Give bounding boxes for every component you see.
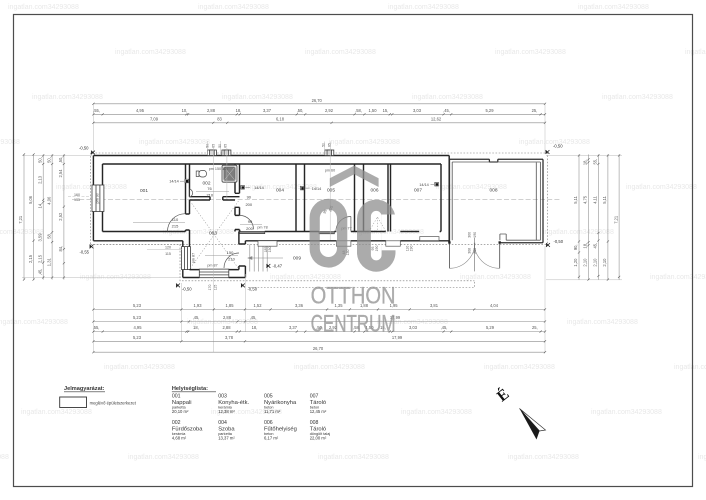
- svg-text:ingatlan.com34293088: ingatlan.com34293088: [139, 139, 210, 146]
- svg-text:14/14: 14/14: [169, 180, 179, 184]
- svg-text:,45,: ,45,: [250, 315, 257, 320]
- svg-text:12,45 m²: 12,45 m²: [310, 409, 327, 414]
- svg-text:1,50: 1,50: [369, 108, 378, 113]
- svg-text:,58,: ,58,: [355, 108, 362, 113]
- svg-text:14,: 14,: [37, 203, 42, 209]
- svg-text:4,11: 4,11: [593, 195, 598, 203]
- svg-text:65: 65: [211, 144, 215, 148]
- svg-text:90: 90: [247, 195, 252, 200]
- svg-text:12,38 m²: 12,38 m²: [218, 409, 235, 414]
- svg-text:004: 004: [218, 420, 227, 426]
- svg-text:2,15: 2,15: [37, 254, 42, 263]
- svg-text:002: 002: [172, 420, 181, 426]
- svg-text:CENTRUM: CENTRUM: [311, 310, 396, 337]
- svg-text:1,93: 1,93: [194, 303, 203, 308]
- svg-text:4,75: 4,75: [583, 195, 588, 204]
- svg-text:4,68 m²: 4,68 m²: [172, 436, 187, 441]
- svg-text:ingatlan.com34293088: ingatlan.com34293088: [0, 319, 68, 326]
- svg-text:1,52: 1,52: [254, 303, 263, 308]
- svg-text:5,29: 5,29: [486, 325, 495, 330]
- svg-text:2,88: 2,88: [223, 315, 232, 320]
- svg-text:3,81: 3,81: [430, 303, 439, 308]
- svg-text:pm 87: pm 87: [207, 263, 217, 267]
- svg-text:90,: 90,: [573, 244, 578, 250]
- svg-text:2,88: 2,88: [207, 108, 216, 113]
- svg-text:110: 110: [172, 217, 179, 222]
- svg-text:,45,: ,45,: [441, 325, 448, 330]
- svg-text:4,06: 4,06: [46, 196, 51, 205]
- svg-text:ingatlan.com34293088: ingatlan.com34293088: [56, 184, 127, 191]
- svg-text:008: 008: [489, 188, 497, 194]
- svg-text:10,: 10,: [182, 108, 188, 113]
- svg-text:5,23: 5,23: [133, 315, 142, 320]
- svg-text:ingatlan.com34293088: ingatlan.com34293088: [412, 94, 483, 101]
- svg-text:ingatlan.com34293088: ingatlan.com34293088: [508, 454, 579, 461]
- svg-text:5,11: 5,11: [602, 195, 607, 203]
- svg-text:Jelmagyarázat:: Jelmagyarázat:: [64, 386, 105, 392]
- svg-text:ingatlan.com34293088: ingatlan.com34293088: [32, 94, 103, 101]
- svg-text:,45,: ,45,: [37, 269, 42, 276]
- svg-text:4,95: 4,95: [136, 108, 145, 113]
- svg-text:14/14: 14/14: [312, 187, 322, 191]
- svg-text:2,88: 2,88: [223, 325, 232, 330]
- svg-text:5,23: 5,23: [133, 303, 142, 308]
- svg-text:2,54: 2,54: [58, 169, 63, 178]
- svg-text:ingatlan.com34293088: ingatlan.com34293088: [567, 319, 638, 326]
- svg-text:ingatlan.com34293088: ingatlan.com34293088: [484, 364, 555, 371]
- svg-text:ingatlan.com34293088: ingatlan.com34293088: [115, 49, 186, 56]
- svg-text:2,10: 2,10: [593, 258, 598, 267]
- svg-text:Helyiséglista:: Helyiséglista:: [172, 386, 208, 392]
- svg-text:5,29: 5,29: [486, 108, 495, 113]
- svg-text:90: 90: [248, 219, 253, 224]
- svg-text:84,: 84,: [58, 246, 63, 252]
- svg-text:ingatlan.com34293088: ingatlan.com34293088: [388, 4, 459, 11]
- svg-text:ingatlan.com34293088: ingatlan.com34293088: [305, 49, 376, 56]
- svg-text:ingatlan.com34293088: ingatlan.com34293088: [222, 94, 293, 101]
- svg-text:6,17 m²: 6,17 m²: [264, 436, 279, 441]
- svg-text:3,59: 3,59: [37, 233, 42, 242]
- svg-text:3,37: 3,37: [263, 108, 272, 113]
- svg-text:ingatlan.com34293088: ingatlan.com34293088: [460, 274, 531, 281]
- svg-text:2,10: 2,10: [602, 258, 607, 267]
- svg-text:11,71 m²: 11,71 m²: [264, 409, 281, 414]
- svg-text:15,: 15,: [383, 108, 389, 113]
- svg-text:,50,: ,50,: [58, 157, 63, 164]
- svg-text:50,: 50,: [37, 157, 42, 163]
- svg-text:2,13: 2,13: [37, 175, 42, 184]
- svg-text:-0,50: -0,50: [554, 239, 564, 244]
- svg-text:005: 005: [327, 188, 335, 194]
- svg-text:ingatlan.com34293088: ingatlan.com34293088: [650, 274, 706, 281]
- svg-text:ingatlan.com34293088: ingatlan.com34293088: [8, 4, 79, 11]
- svg-text:25,: 25,: [532, 325, 538, 330]
- svg-text:008: 008: [310, 420, 319, 426]
- svg-text:3,03: 3,03: [409, 325, 418, 330]
- svg-text:308: 308: [468, 248, 472, 254]
- svg-text:18,: 18,: [583, 159, 588, 165]
- svg-text:6,18: 6,18: [276, 117, 285, 122]
- svg-text:2,10: 2,10: [583, 258, 588, 267]
- svg-text:18,: 18,: [252, 325, 258, 330]
- svg-text:003: 003: [218, 394, 227, 400]
- svg-text:210: 210: [206, 192, 213, 197]
- svg-text:18,: 18,: [193, 325, 199, 330]
- svg-text:50,: 50,: [46, 157, 51, 163]
- svg-text:5,06: 5,06: [28, 195, 33, 204]
- svg-text:-0,47: -0,47: [273, 264, 283, 269]
- svg-text:1,20: 1,20: [573, 258, 578, 267]
- svg-text:3,36: 3,36: [295, 303, 304, 308]
- svg-text:65: 65: [224, 144, 228, 148]
- svg-text:ingatlan.com34293088: ingatlan.com34293088: [578, 4, 649, 11]
- svg-text:,55,: ,55,: [93, 325, 100, 330]
- svg-text:7,21: 7,21: [18, 215, 23, 224]
- svg-text:260: 260: [473, 248, 477, 254]
- svg-text:20,10 m²: 20,10 m²: [172, 409, 189, 414]
- svg-text:ingatlan.com34293088: ingatlan.com34293088: [626, 184, 697, 191]
- svg-text:pm 150 165: pm 150 165: [209, 167, 228, 171]
- svg-text:5,23: 5,23: [133, 335, 142, 340]
- svg-text:50: 50: [205, 144, 209, 148]
- svg-text:58,: 58,: [46, 233, 51, 239]
- svg-text:50: 50: [322, 143, 326, 147]
- svg-text:4,95: 4,95: [134, 325, 143, 330]
- svg-text:83: 83: [217, 117, 222, 122]
- svg-text:pm 78: pm 78: [257, 225, 267, 229]
- svg-text:-0,50: -0,50: [248, 287, 258, 292]
- svg-text:-0,55: -0,55: [79, 250, 89, 255]
- svg-text:ingatlan.com34293088: ingatlan.com34293088: [698, 454, 706, 461]
- svg-text:190: 190: [473, 232, 477, 238]
- svg-text:50: 50: [218, 144, 222, 148]
- svg-text:pm 60: pm 60: [325, 169, 335, 173]
- svg-text:7,21: 7,21: [613, 215, 618, 224]
- svg-text:18,: 18,: [236, 108, 242, 113]
- svg-text:,45,: ,45,: [193, 315, 200, 320]
- svg-text:215: 215: [172, 224, 179, 229]
- svg-text:14/14: 14/14: [419, 183, 429, 187]
- svg-text:pm 87: pm 87: [191, 253, 195, 263]
- svg-text:ingatlan.com34293088: ingatlan.com34293088: [128, 454, 199, 461]
- svg-text:150: 150: [227, 250, 234, 255]
- svg-text:005: 005: [264, 394, 273, 400]
- svg-text:14/14: 14/14: [254, 186, 264, 190]
- svg-text:76: 76: [207, 186, 212, 191]
- svg-text:ingatlan.com34293088: ingatlan.com34293088: [674, 364, 706, 371]
- svg-text:3,37: 3,37: [289, 325, 298, 330]
- svg-text:ingatlan.com34293088: ingatlan.com34293088: [318, 454, 389, 461]
- svg-text:004: 004: [276, 188, 284, 194]
- svg-text:26,70: 26,70: [313, 346, 324, 351]
- svg-text:ingatlan.com34293088: ingatlan.com34293088: [0, 139, 20, 146]
- svg-text:1,85: 1,85: [226, 303, 235, 308]
- svg-text:25,: 25,: [532, 108, 538, 113]
- svg-text:ingatlan.com34293088: ingatlan.com34293088: [270, 274, 341, 281]
- svg-text:ingatlan.com34293088: ingatlan.com34293088: [0, 454, 9, 461]
- svg-text:ingatlan.com34293088: ingatlan.com34293088: [543, 229, 614, 236]
- svg-text:,50,: ,50,: [297, 108, 304, 113]
- svg-text:210: 210: [228, 257, 235, 262]
- svg-text:ingatlan.com34293088: ingatlan.com34293088: [198, 4, 269, 11]
- svg-text:006: 006: [264, 420, 273, 426]
- svg-text:OTTHON: OTTHON: [311, 283, 396, 310]
- svg-text:-0,50: -0,50: [182, 287, 192, 292]
- svg-text:5,11: 5,11: [573, 195, 578, 203]
- svg-text:-0,50: -0,50: [79, 146, 89, 151]
- svg-text:65: 65: [327, 143, 331, 147]
- svg-text:160: 160: [74, 193, 80, 197]
- svg-text:3,03: 3,03: [413, 108, 422, 113]
- svg-text:ingatlan.com34293088: ingatlan.com34293088: [401, 409, 472, 416]
- svg-text:12,62: 12,62: [431, 117, 442, 122]
- svg-text:200: 200: [246, 226, 253, 231]
- svg-text:ingatlan.com34293088: ingatlan.com34293088: [294, 364, 365, 371]
- svg-text:009: 009: [293, 256, 301, 262]
- svg-text:170: 170: [208, 285, 212, 291]
- svg-text:007: 007: [414, 188, 422, 194]
- svg-text:pm 90: pm 90: [96, 193, 100, 203]
- svg-text:26,70: 26,70: [312, 98, 323, 103]
- svg-text:135: 135: [74, 198, 80, 202]
- svg-text:001: 001: [140, 188, 148, 194]
- svg-text:22,00 m²: 22,00 m²: [310, 436, 327, 441]
- svg-text:ingatlan.com34293088: ingatlan.com34293088: [21, 409, 92, 416]
- svg-text:,45,: ,45,: [443, 108, 450, 113]
- svg-text:ingatlan.com34293088: ingatlan.com34293088: [104, 364, 175, 371]
- svg-text:130: 130: [268, 247, 272, 253]
- svg-text:ingatlan.com34293088: ingatlan.com34293088: [685, 49, 706, 56]
- svg-text:ingatlan.com34293088: ingatlan.com34293088: [163, 229, 234, 236]
- svg-text:300: 300: [468, 232, 472, 238]
- svg-text:2,15: 2,15: [28, 254, 33, 263]
- svg-text:190: 190: [410, 246, 414, 252]
- svg-text:007: 007: [310, 394, 319, 400]
- svg-text:ingatlan.com34293088: ingatlan.com34293088: [591, 409, 662, 416]
- svg-text:006: 006: [370, 188, 378, 194]
- svg-text:18,: 18,: [583, 243, 588, 249]
- svg-text:1,31: 1,31: [46, 257, 51, 266]
- svg-text:4,04: 4,04: [490, 303, 499, 308]
- svg-text:55,: 55,: [593, 159, 598, 165]
- svg-text:7,09: 7,09: [150, 117, 159, 122]
- svg-text:13,37 m²: 13,37 m²: [218, 436, 235, 441]
- svg-text:120: 120: [165, 245, 171, 249]
- svg-text:-0,50: -0,50: [553, 144, 563, 149]
- svg-text:001: 001: [172, 394, 181, 400]
- svg-text:2,92: 2,92: [325, 108, 334, 113]
- svg-text:ingatlan.com34293088: ingatlan.com34293088: [602, 94, 673, 101]
- svg-text:115: 115: [165, 252, 171, 256]
- svg-text:ingatlan.com34293088: ingatlan.com34293088: [495, 49, 566, 56]
- svg-text:45,: 45,: [593, 243, 598, 249]
- svg-text:meglévő épületszerkezet: meglévő épületszerkezet: [90, 401, 137, 406]
- svg-text:2,52: 2,52: [58, 212, 63, 221]
- svg-text:ingatlan.com34293088: ingatlan.com34293088: [329, 139, 400, 146]
- svg-text:190: 190: [375, 246, 379, 252]
- svg-text:115: 115: [214, 285, 218, 291]
- svg-text:003: 003: [209, 231, 217, 237]
- svg-text:200: 200: [245, 202, 252, 207]
- svg-text:3,78: 3,78: [225, 335, 234, 340]
- svg-text:,55,: ,55,: [93, 108, 100, 113]
